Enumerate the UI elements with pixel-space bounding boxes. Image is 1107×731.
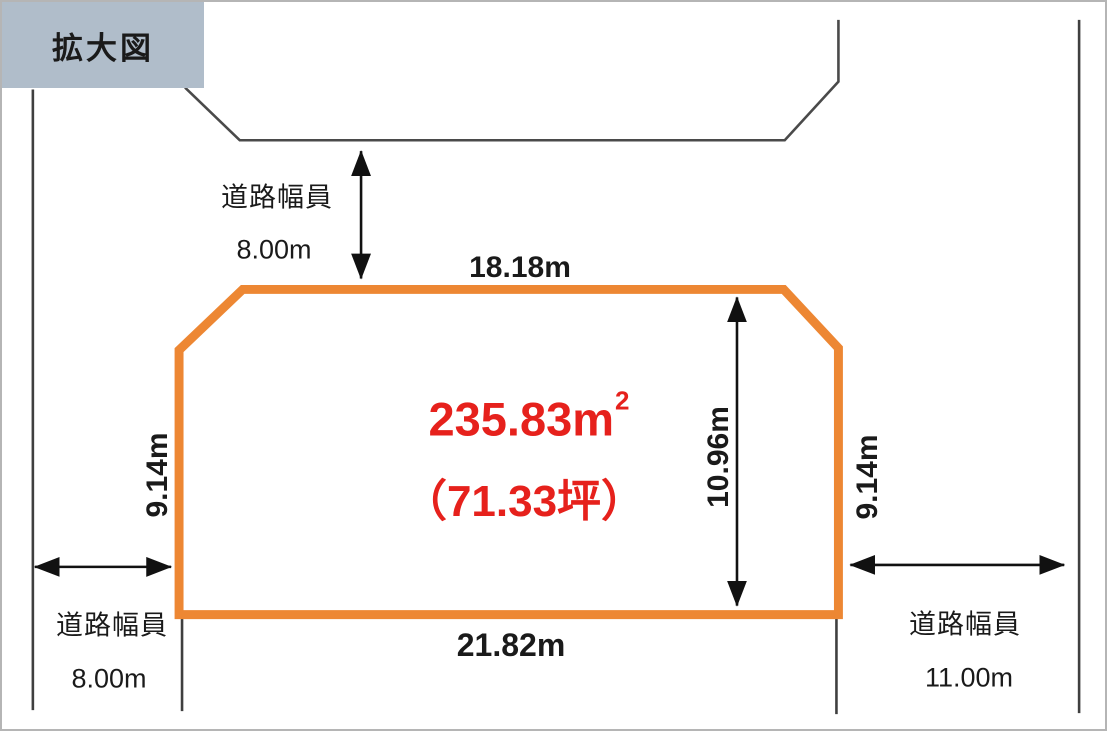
left-road-width-value: 8.00m <box>71 666 146 693</box>
page-title: 拡大図 <box>52 23 154 68</box>
parcel-area-sqm: 235.83m2 <box>428 388 629 443</box>
enlarged-plot-diagram: 拡大図 道路幅員 8.00m 18.18m 21.82m 9.14m 9.14m… <box>0 0 1107 731</box>
top-road-width-label: 道路幅員 <box>221 185 333 212</box>
parcel-area-tsubo: （71.33坪） <box>403 480 645 524</box>
top-road-width-value: 8.00m <box>236 237 311 264</box>
parcel-area-exponent: 2 <box>615 386 629 416</box>
parcel-bottom-edge-dimension: 21.82m <box>457 629 566 661</box>
right-road-width-label: 道路幅員 <box>909 612 1021 639</box>
title-box: 拡大図 <box>2 2 204 88</box>
left-road-width-label: 道路幅員 <box>56 613 168 640</box>
parcel-area-sqm-value: 235.83m <box>428 393 614 446</box>
right-road-width-value: 11.00m <box>925 665 1013 692</box>
neighbor-parcel-outline <box>185 20 838 140</box>
parcel-right-edge-dimension: 9.14m <box>853 434 883 519</box>
main-parcel-outline <box>179 289 838 614</box>
parcel-left-edge-dimension: 9.14m <box>143 432 173 517</box>
parcel-inner-depth-dimension: 10.96m <box>704 406 734 508</box>
parcel-top-edge-dimension: 18.18m <box>469 253 571 283</box>
